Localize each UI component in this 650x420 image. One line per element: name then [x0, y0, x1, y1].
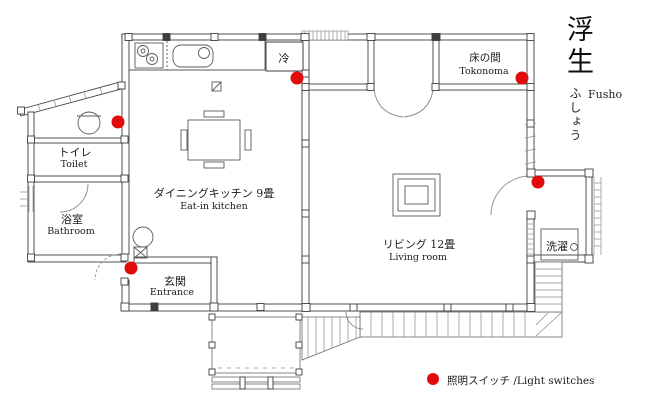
legend-label: 照明スイッチ /Light switches [447, 375, 594, 387]
light-switch-marker [291, 72, 304, 85]
water-heater-icon [133, 227, 153, 247]
label-living-jp: リビング 12畳 [383, 237, 456, 251]
closet-double-door-arc [404, 90, 433, 117]
label-bathroom-en: Bathroom [47, 226, 95, 237]
label-toilet-en: Toilet [61, 159, 88, 170]
shutter-rail [594, 177, 601, 255]
dining-table-icon [181, 111, 251, 168]
label-living-en: Living room [389, 252, 447, 263]
sink-icon [173, 45, 213, 67]
label-entrance-en: Entrance [150, 287, 195, 298]
light-switch-markers [112, 72, 545, 275]
label-kitchen-en: Eat-in kitchen [180, 201, 248, 212]
legend-dot-icon [427, 373, 439, 385]
label-tokonoma-en: Tokonoma [459, 66, 509, 77]
light-switch-marker [112, 116, 125, 129]
kitchen-counter [129, 40, 265, 91]
shoe-box-icon [134, 247, 147, 258]
closet-double-door-arc [374, 90, 403, 117]
stove-icon [135, 43, 163, 68]
bathroom-door-arc [60, 184, 88, 212]
hearth-icon [393, 174, 440, 216]
laundry-door-arc [491, 176, 530, 215]
label-kitchen-jp: ダイニングキッチン 9畳 [154, 186, 275, 200]
toilet-icon [77, 112, 101, 134]
light-switch-marker [125, 262, 138, 275]
floor-plan-drawing: トイレ Toilet 浴室 Bathroom ダイニングキッチン 9畳 Eat-… [0, 0, 650, 420]
label-laundry: 洗濯 [546, 240, 568, 253]
label-entrance-jp: 玄関 [164, 274, 186, 288]
plan-title-romaji: Fusho [588, 88, 622, 101]
label-bathroom-jp: 浴室 [61, 212, 83, 226]
entrance-fixtures [133, 227, 153, 258]
label-toilet-jp: トイレ [59, 146, 92, 159]
plan-title-kanji: 浮生 [564, 15, 591, 79]
plan-title-kana: ふしょう [569, 87, 581, 143]
floor-plan-page: トイレ Toilet 浴室 Bathroom ダイニングキッチン 9畳 Eat-… [0, 0, 650, 420]
gas-outlet-icon [212, 82, 221, 91]
legend: 照明スイッチ /Light switches [427, 373, 594, 387]
label-tokonoma-jp: 床の間 [469, 51, 501, 64]
light-switch-marker [516, 72, 529, 85]
porch [209, 314, 302, 389]
label-refrigerator: 冷 [279, 52, 290, 65]
light-switch-marker [532, 176, 545, 189]
